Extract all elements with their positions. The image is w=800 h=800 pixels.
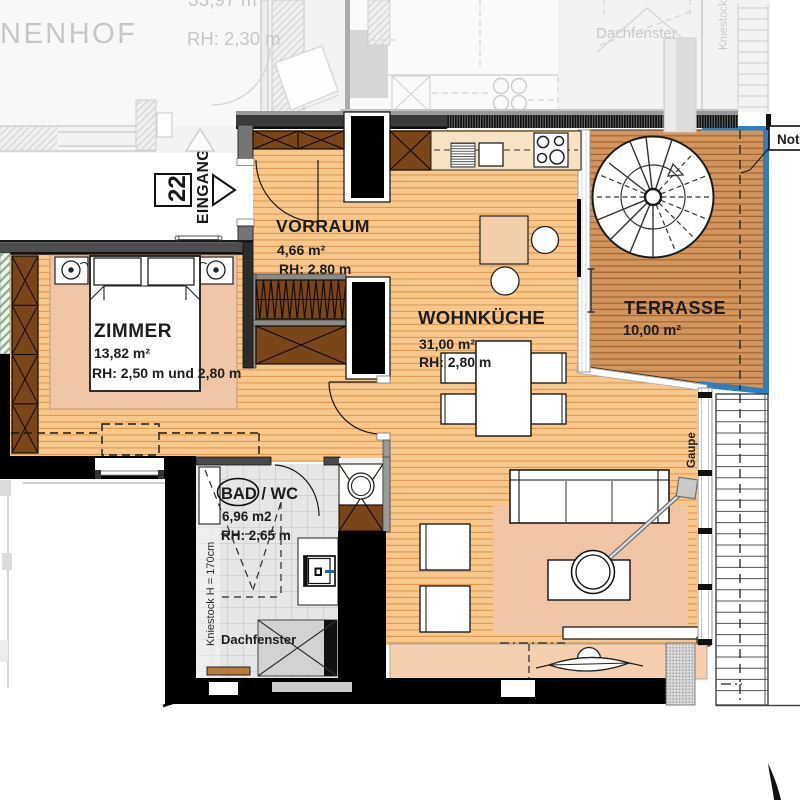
svg-text:Kniestock: Kniestock [718,0,730,50]
svg-text:22: 22 [164,175,191,202]
svg-text:VORRAUM: VORRAUM [276,216,370,236]
svg-text:4,66 m²: 4,66 m² [277,242,326,258]
svg-text:Gaupe: Gaupe [686,432,698,468]
svg-text:Kniestock H = 170cm: Kniestock H = 170cm [205,542,217,646]
svg-text:ZIMMER: ZIMMER [94,321,172,342]
svg-text:RH: 2,30 m: RH: 2,30 m [187,28,281,49]
svg-text:13,82 m²: 13,82 m² [94,345,150,361]
svg-text:31,00 m²: 31,00 m² [419,336,475,352]
svg-text:Not: Not [777,132,800,147]
svg-text:BAD / WC: BAD / WC [221,485,298,503]
svg-text:RH: 2,80 m: RH: 2,80 m [419,354,491,370]
svg-text:NENHOF: NENHOF [0,18,137,50]
svg-text:6,96 m2: 6,96 m2 [222,509,272,524]
svg-text:10,00 m²: 10,00 m² [623,323,681,339]
svg-text:Dachfenster: Dachfenster [221,632,296,647]
svg-text:RH: 2,65 m: RH: 2,65 m [221,528,291,543]
svg-text:RH: 2,50 m und 2,80 m: RH: 2,50 m und 2,80 m [92,365,241,381]
svg-text:EINGANG: EINGANG [195,148,212,224]
svg-text:33,97 m: 33,97 m [188,0,257,11]
svg-text:WOHNKÜCHE: WOHNKÜCHE [418,307,545,328]
svg-text:TERRASSE: TERRASSE [624,298,726,318]
